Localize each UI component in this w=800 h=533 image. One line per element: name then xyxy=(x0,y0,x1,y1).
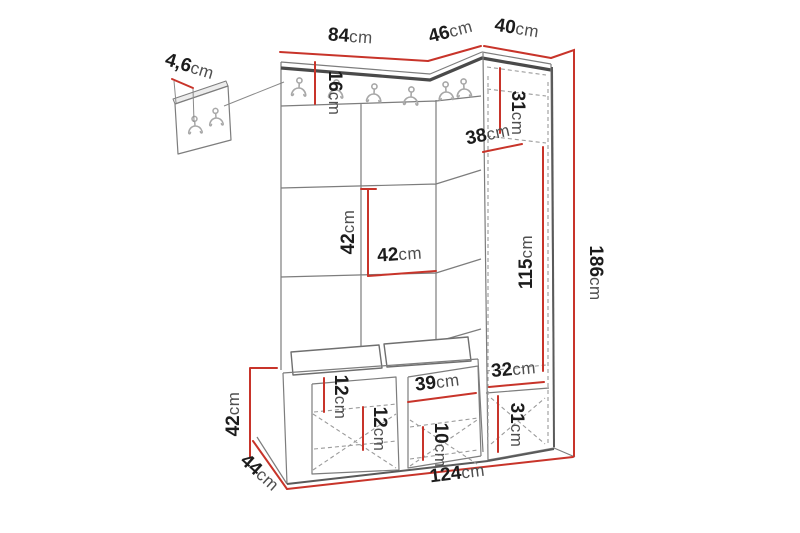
dim-label-shelf-height: 10cm xyxy=(430,423,451,468)
dim-label-bench-top-inset: 12cm xyxy=(330,375,351,420)
dim-label-door-height: 115cm xyxy=(516,235,537,289)
dimension-diagram: 84cm 46cm 40cm 4,6cm 16cm 31cm 38cm 42cm… xyxy=(0,0,800,533)
dim-label-bench-shelf-gap: 12cm xyxy=(369,407,390,452)
dim-label-top-left-width: 84cm xyxy=(327,24,373,48)
dim-label-tile-height: 42cm xyxy=(338,210,359,255)
dim-label-total-height: 186cm xyxy=(585,245,606,300)
dim-label-bench-height: 42cm xyxy=(223,392,244,437)
background xyxy=(0,0,800,533)
dim-label-lower-niche-height: 31cm xyxy=(506,403,527,448)
dim-label-cabinet-top-section: 31cm xyxy=(507,91,528,136)
dim-label-rail-height: 16cm xyxy=(324,71,345,116)
